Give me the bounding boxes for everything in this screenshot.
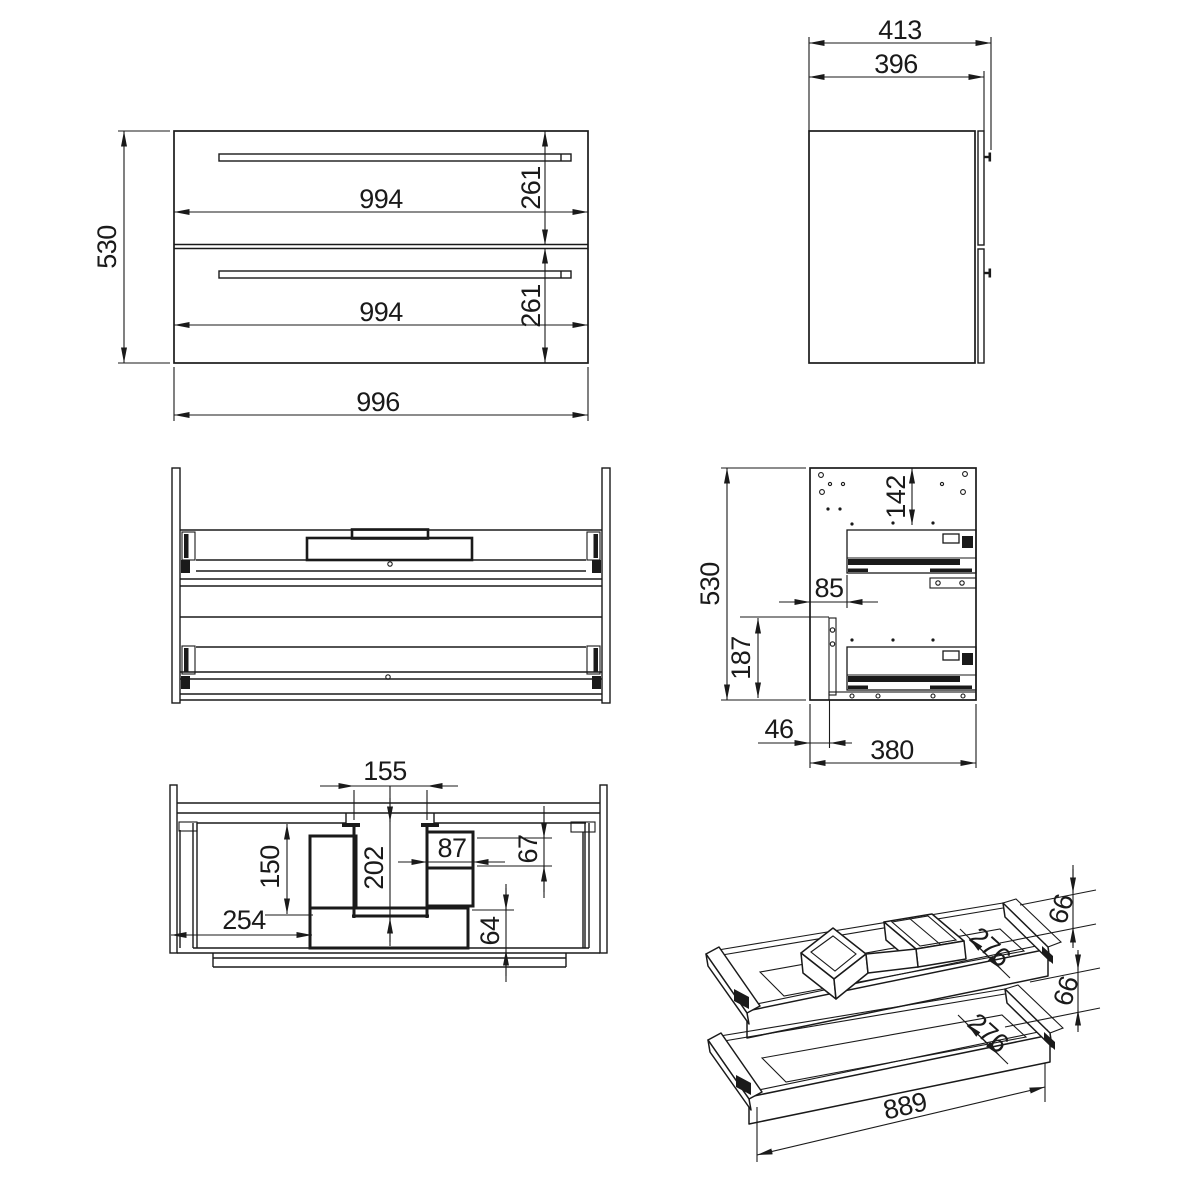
plan-post-left: [170, 785, 177, 953]
dim-label-upper-wall-height: 66: [1042, 891, 1079, 928]
organizer-box-small-bottom: [427, 868, 473, 906]
dim-label-back-box-depth: 64: [475, 916, 505, 946]
dim-plan-cutout-depth: 202: [359, 786, 390, 946]
dim-label-cutout-width: 155: [363, 756, 407, 786]
dim-front-total-height: 530: [92, 131, 170, 363]
upper-left-cap: [706, 947, 760, 1013]
carcass-rails: [180, 530, 602, 700]
side-section-view: 530 142 85 187 46 380: [695, 468, 976, 768]
side-body-outline: [809, 131, 975, 363]
front-open-view: [172, 468, 610, 703]
dim-plan-left-box-depth: 150: [255, 824, 313, 915]
dim-label-lower-wall-height: 66: [1047, 973, 1084, 1010]
plan-view: 155 202 87 67 150 254: [170, 756, 607, 982]
drawer-handle-top: [219, 154, 571, 161]
iso-view: 66 276 66 276 889: [706, 865, 1100, 1162]
dim-plan-left-offset: 254: [171, 905, 312, 935]
drawer-front-profile-bottom: [978, 249, 984, 363]
slide-bracket-bottom-left: [181, 646, 195, 689]
dim-plan-cutout-width: 155: [320, 756, 458, 820]
drawer-handle-bottom: [219, 271, 571, 278]
technical-drawing-canvas: 994 261 994 261 530 996: [0, 0, 1200, 1200]
dim-label-slide-setback: 85: [814, 573, 843, 603]
dim-section-lower-bracket-height: 187: [726, 617, 829, 698]
dim-label-section-height: 530: [695, 562, 725, 606]
dim-side-depth-with-handle: 413: [809, 15, 991, 150]
dim-label-left-box-depth: 150: [255, 845, 285, 889]
dim-label-cutout-depth: 202: [359, 846, 389, 890]
dim-section-front-setback: 46: [758, 700, 852, 768]
dim-section-inner-depth: 380: [810, 704, 976, 768]
dim-label-depth-with-handle: 413: [878, 15, 922, 45]
dim-front-total-width: 996: [174, 367, 588, 421]
dim-label-right-clearance: 67: [513, 834, 543, 863]
dim-side-depth-body: 396: [809, 49, 984, 131]
dim-label-drawer-bottom-height: 261: [516, 284, 546, 328]
dim-label-top-to-slide: 142: [881, 475, 911, 519]
plan-post-right: [600, 785, 607, 953]
side-handle-bottom: [984, 269, 991, 278]
siphon-recess: [307, 530, 472, 567]
lower-left-cap: [708, 1033, 762, 1099]
dim-front-drawer-bottom-height: 261: [516, 248, 546, 363]
side-panel-left: [172, 468, 180, 703]
dim-label-drawer-bottom-width: 994: [359, 297, 403, 327]
dim-label-drawer-top-height: 261: [516, 166, 546, 210]
organizer-box-back: [310, 908, 468, 948]
dim-label-tray-box-width: 87: [437, 833, 466, 863]
dim-section-slide-setback: 85: [779, 573, 878, 608]
dim-label-left-offset: 254: [222, 905, 266, 935]
side-panel-right: [602, 468, 610, 703]
slide-bracket-bottom-right: [587, 646, 601, 689]
side-handle-top: [984, 153, 991, 162]
iso-drawer-upper: [706, 899, 1061, 1038]
organizer-box-left: [310, 836, 356, 908]
dim-label-inner-depth: 380: [870, 735, 914, 765]
slide-bracket-top-left: [181, 532, 195, 573]
plan-slide-bracket-left: [179, 822, 197, 831]
rail-bracket-mid: [930, 578, 976, 588]
dim-label-drawer-top-width: 994: [359, 184, 403, 214]
dim-label-total-width: 996: [356, 387, 400, 417]
technical-drawing-page: 994 261 994 261 530 996: [0, 0, 1200, 1200]
dim-plan-right-clearance: 67: [477, 806, 552, 898]
dim-label-front-setback: 46: [764, 714, 793, 744]
dim-section-top-to-slide: 142: [881, 468, 912, 525]
dim-label-total-height: 530: [92, 225, 122, 269]
drawer-slide-lower: [847, 647, 976, 690]
drawer-slide-upper: [847, 530, 976, 573]
side-view: 413 396: [809, 15, 991, 363]
front-mounting-bracket: [829, 618, 836, 695]
dim-iso-upper-wall-height: 66: [1000, 865, 1096, 948]
slide-bracket-top-right: [587, 532, 601, 573]
drawer-front-profile-top: [978, 131, 984, 245]
dim-front-drawer-top-height: 261: [516, 131, 546, 245]
drawer-divider: [174, 245, 588, 249]
bottom-rail: [829, 692, 976, 700]
front-view: 994 261 994 261 530 996: [92, 131, 588, 421]
dim-label-depth-body: 396: [874, 49, 918, 79]
dim-label-lower-bracket-height: 187: [726, 636, 756, 680]
